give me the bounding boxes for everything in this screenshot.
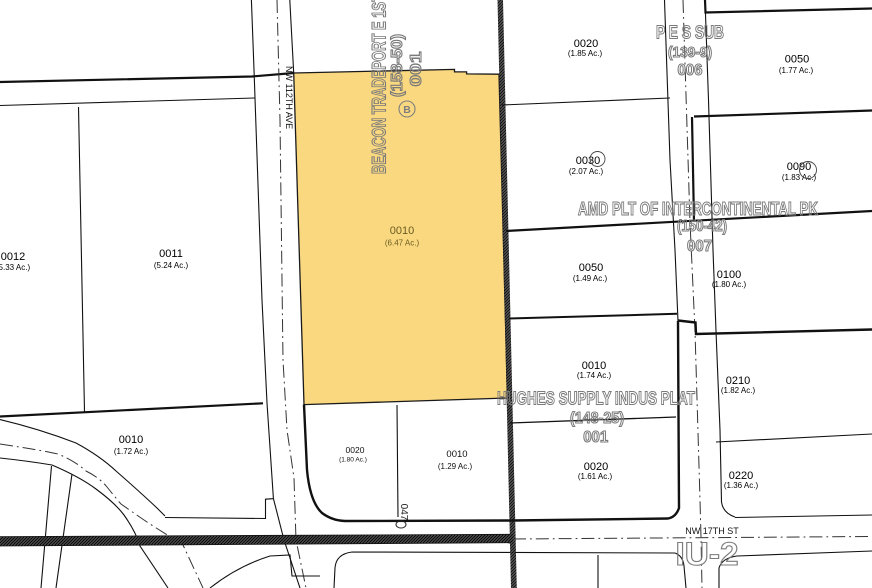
svg-text:0050: 0050 — [579, 262, 603, 274]
svg-text:(6.47 Ac.): (6.47 Ac.) — [385, 239, 420, 248]
svg-text:006: 006 — [678, 62, 703, 79]
svg-text:(1.29 Ac.): (1.29 Ac.) — [438, 462, 473, 471]
svg-text:(148-25): (148-25) — [570, 410, 624, 427]
svg-text:0010: 0010 — [119, 434, 143, 446]
svg-text:(5.33 Ac.): (5.33 Ac.) — [0, 263, 30, 272]
svg-text:0011: 0011 — [159, 248, 183, 260]
svg-text:007: 007 — [687, 238, 712, 255]
svg-text:AMD PLT OF INTERCONTINENTAL PK: AMD PLT OF INTERCONTINENTAL PK — [578, 199, 818, 219]
svg-text:0012: 0012 — [1, 251, 25, 263]
svg-text:(1.72 Ac.): (1.72 Ac.) — [114, 447, 149, 456]
svg-text:(5.24 Ac.): (5.24 Ac.) — [154, 261, 189, 270]
svg-text:(1.80 Ac.): (1.80 Ac.) — [712, 280, 747, 289]
svg-text:001: 001 — [408, 51, 425, 86]
svg-text:IU-2: IU-2 — [676, 536, 739, 572]
svg-text:0090: 0090 — [787, 161, 811, 173]
svg-text:0010: 0010 — [446, 449, 467, 460]
svg-text:047: 047 — [398, 504, 409, 521]
svg-text:0010: 0010 — [390, 225, 414, 237]
svg-text:(1.74 Ac.): (1.74 Ac.) — [577, 371, 612, 380]
svg-text:001: 001 — [583, 429, 608, 446]
svg-text:(158-50): (158-50) — [389, 34, 406, 97]
svg-text:P E S SUB: P E S SUB — [656, 23, 724, 43]
svg-text:(1.49 Ac.): (1.49 Ac.) — [573, 274, 608, 283]
svg-text:(150-42): (150-42) — [677, 218, 727, 235]
svg-text:0050: 0050 — [785, 54, 809, 66]
svg-text:(1.36 Ac.): (1.36 Ac.) — [724, 481, 759, 490]
svg-text:NW 112TH AVE: NW 112TH AVE — [284, 66, 294, 129]
svg-text:HUGHES SUPPLY INDUS PLAT: HUGHES SUPPLY INDUS PLAT — [497, 389, 695, 409]
svg-text:(139-9): (139-9) — [668, 44, 712, 61]
svg-text:(2.07 Ac.): (2.07 Ac.) — [569, 167, 604, 176]
svg-text:B: B — [403, 104, 411, 116]
svg-text:0030: 0030 — [576, 155, 600, 167]
svg-text:(1.77 Ac.): (1.77 Ac.) — [779, 66, 814, 75]
svg-text:(1.82 Ac.): (1.82 Ac.) — [721, 386, 756, 395]
svg-text:(1.85 Ac.): (1.85 Ac.) — [568, 49, 603, 58]
svg-text:0020: 0020 — [346, 445, 365, 455]
svg-text:(1.61 Ac.): (1.61 Ac.) — [578, 472, 613, 481]
svg-text:BEACON TRADEPORT E 1ST: BEACON TRADEPORT E 1ST — [370, 0, 391, 174]
svg-text:(1.80 Ac.): (1.80 Ac.) — [339, 457, 367, 464]
svg-text:NW 17TH ST: NW 17TH ST — [685, 526, 739, 536]
